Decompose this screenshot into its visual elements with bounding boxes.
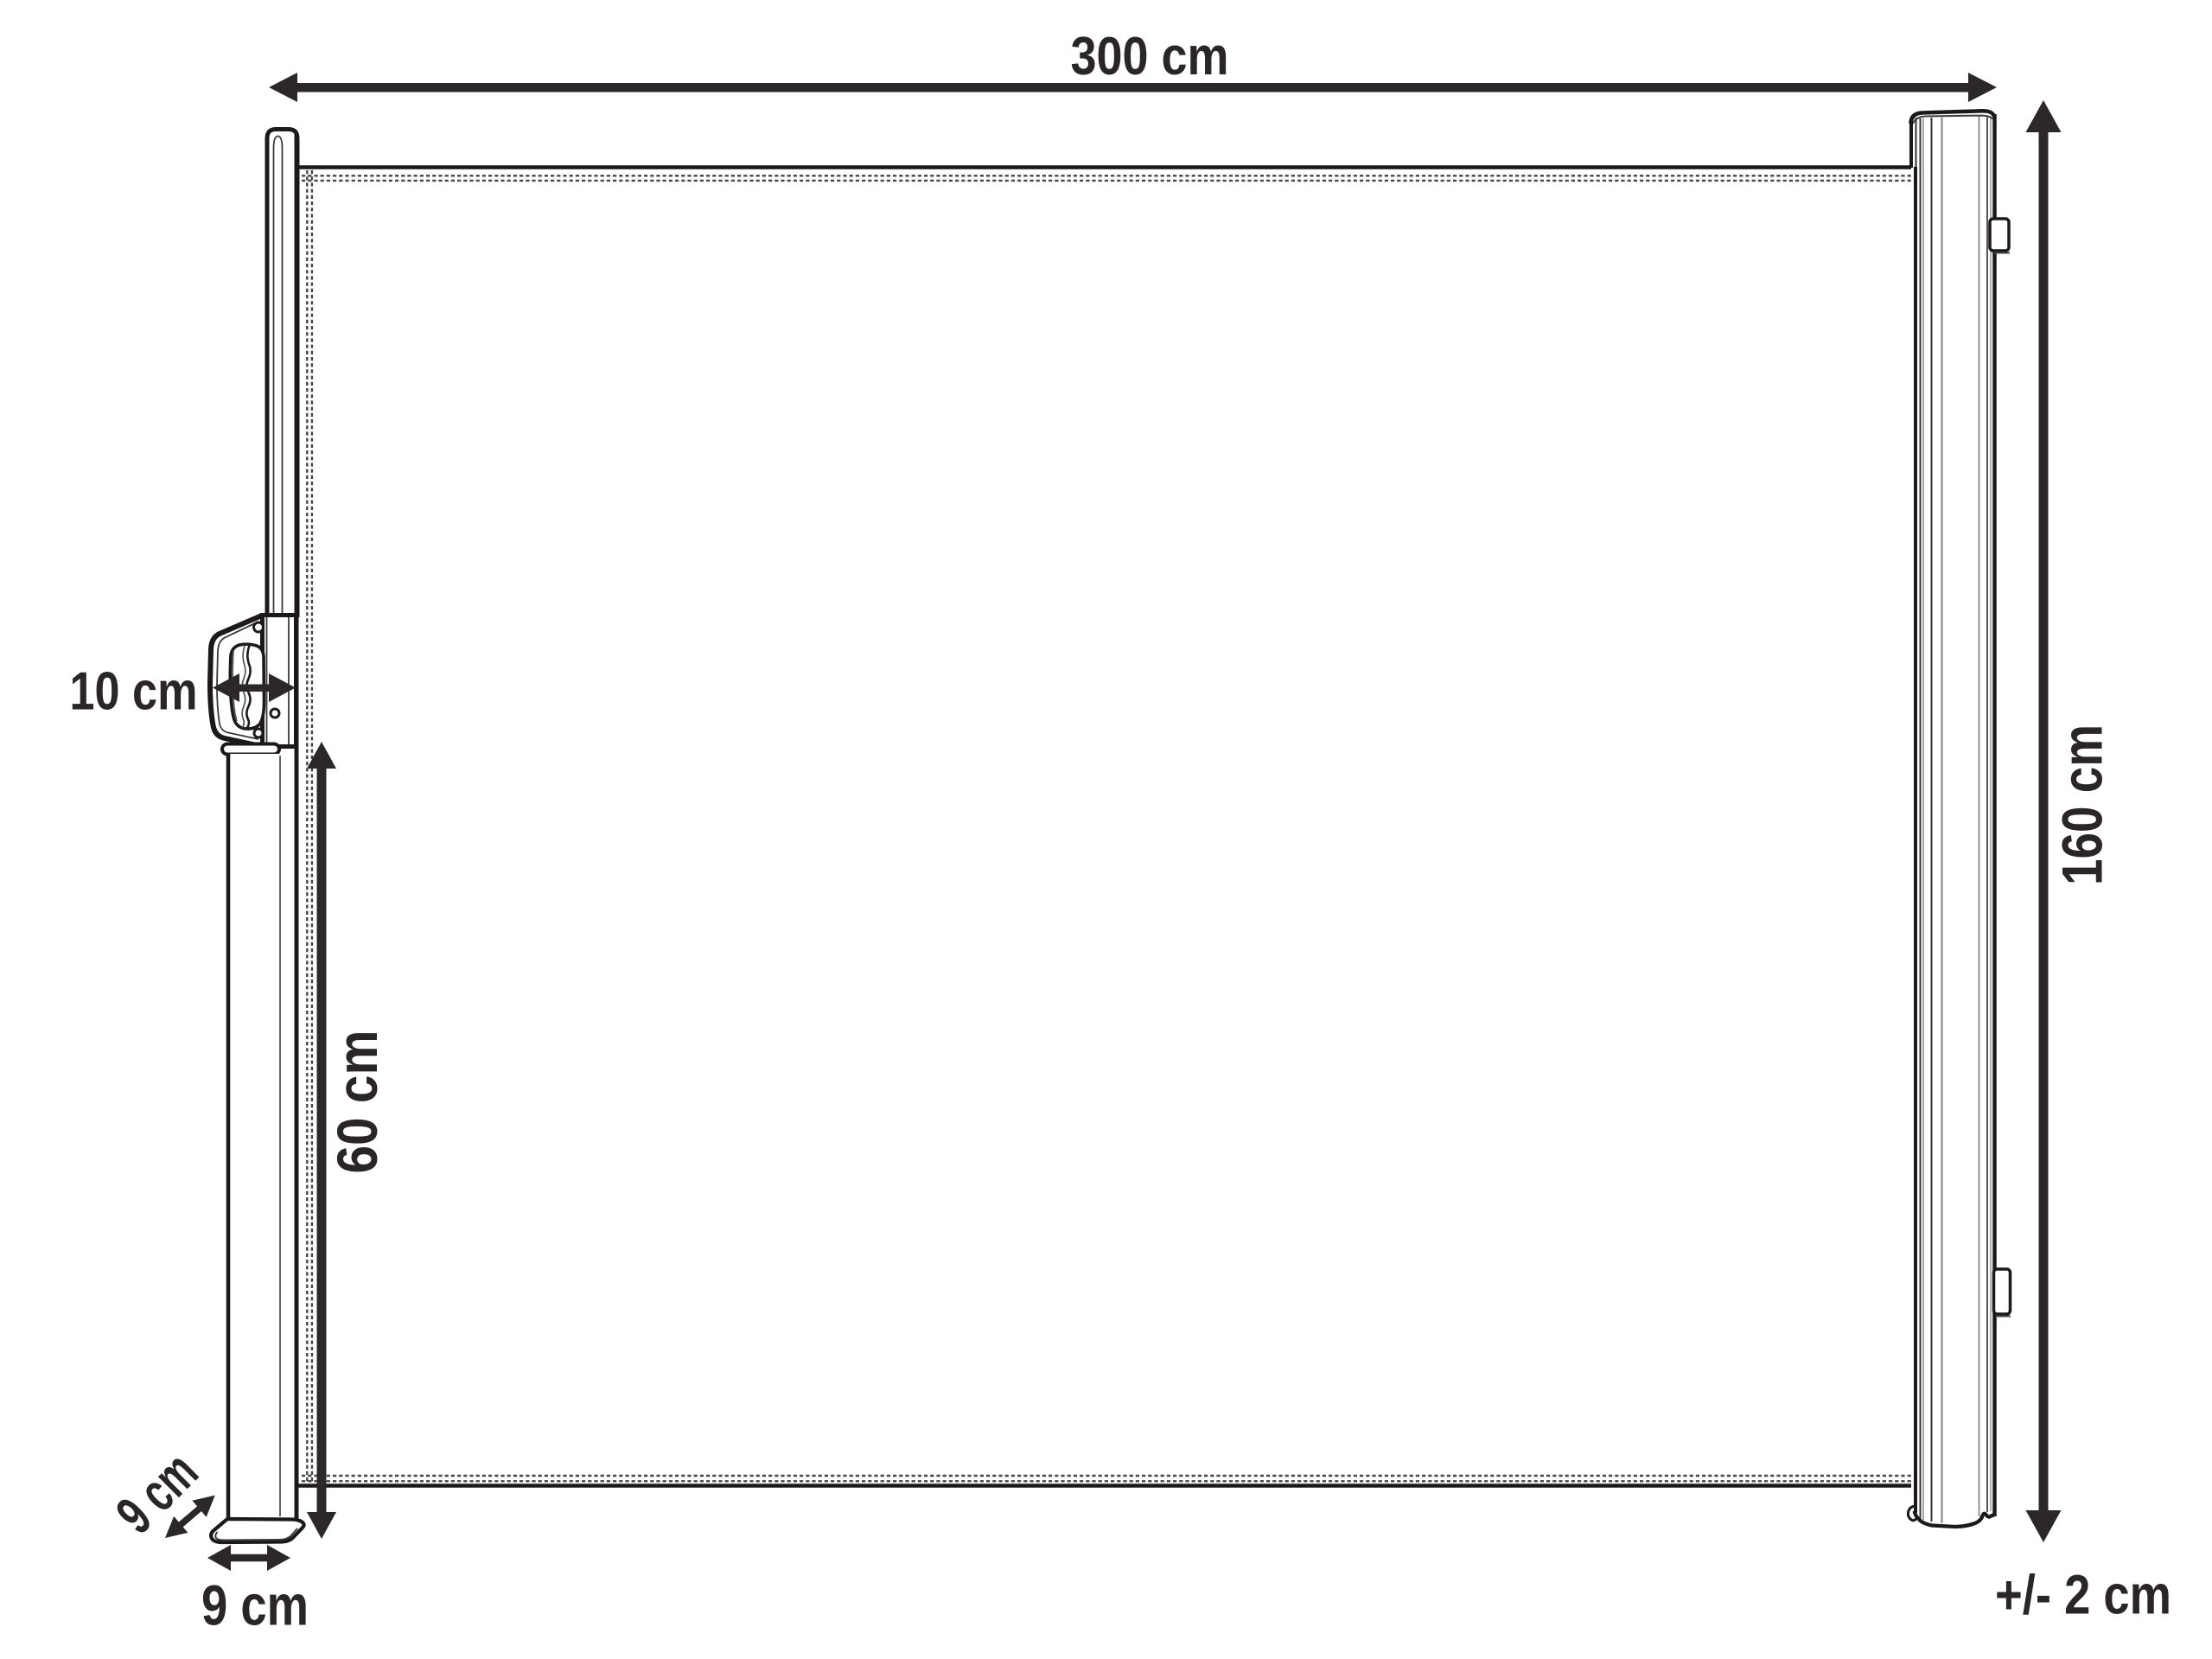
svg-text:10 cm: 10 cm [70,662,198,722]
svg-text:300 cm: 300 cm [1071,27,1229,86]
svg-text:160 cm: 160 cm [2050,724,2114,885]
svg-text:60 cm: 60 cm [325,1030,389,1174]
svg-text:9 cm: 9 cm [201,1573,309,1637]
svg-text:+/- 2 cm: +/- 2 cm [1995,1564,2171,1626]
